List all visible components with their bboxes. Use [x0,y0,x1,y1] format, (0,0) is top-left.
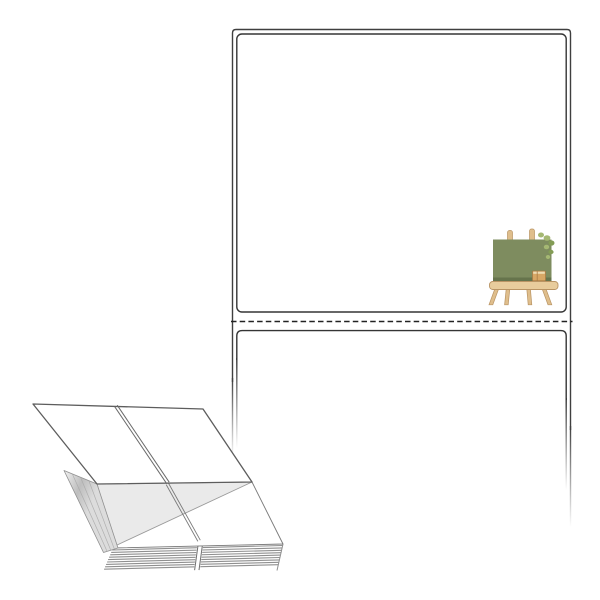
chalk-box [533,271,546,281]
product-image-canvas [0,0,600,600]
fanfold-stack-illustration [33,404,283,571]
leaf [549,240,555,245]
leaf [544,235,551,241]
leaf [538,233,544,238]
easel-tray [490,282,559,290]
fanfold-label-illustration [0,0,600,600]
label-bottom-top-edge [237,331,566,400]
leaf [544,245,549,250]
leaf [548,250,553,254]
chalk-box-top [533,272,545,274]
leaf [546,255,550,259]
